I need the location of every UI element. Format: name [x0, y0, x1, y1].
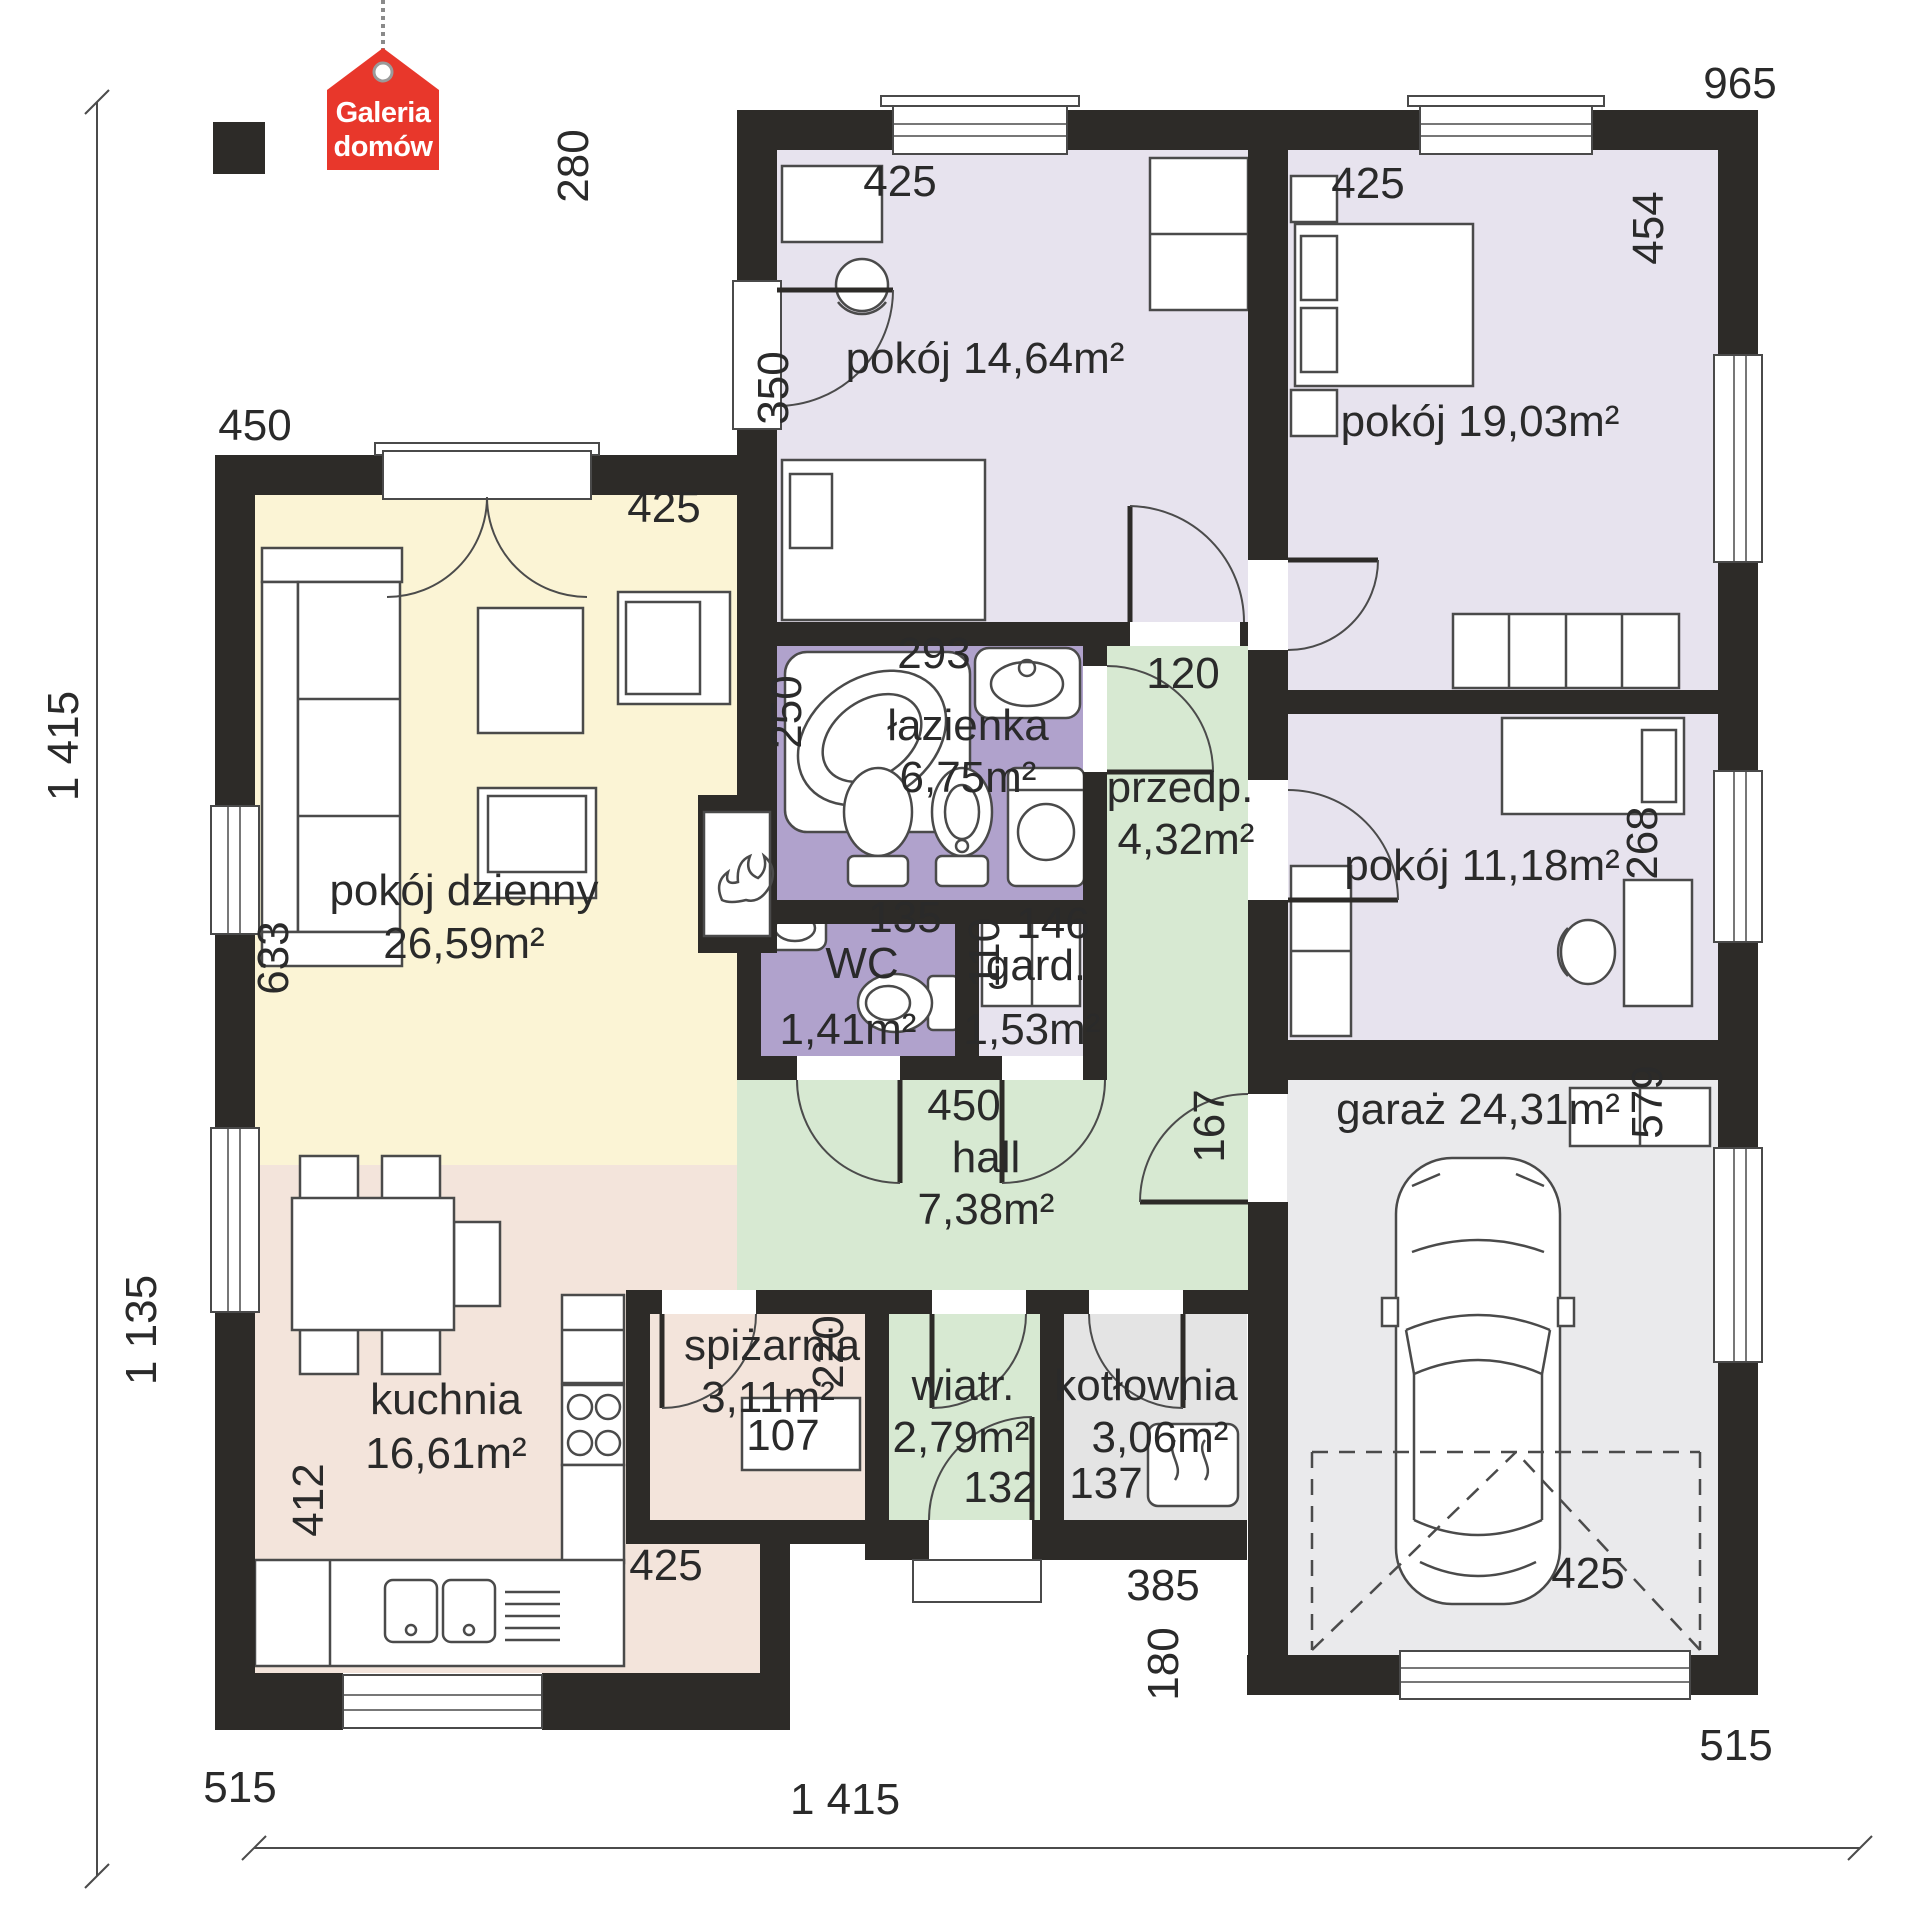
terrace-door-window — [375, 443, 599, 499]
chair-icon — [1558, 920, 1615, 984]
label-windbreak-area: 2,79m² — [893, 1413, 1030, 1462]
window — [211, 1128, 259, 1312]
kitchen-counter-icon — [562, 1465, 624, 1563]
dim-412: 412 — [284, 1463, 333, 1536]
label-hall-area: 7,38m² — [918, 1185, 1055, 1234]
armchair-icon — [618, 592, 730, 704]
label-wc: WC — [825, 939, 898, 988]
garage-door-opening — [1400, 1651, 1690, 1699]
dim-137: 137 — [1069, 1459, 1142, 1508]
fireplace-icon — [704, 812, 773, 936]
dim-425-p14: 425 — [863, 157, 936, 206]
label-kitchen: kuchnia — [370, 1375, 522, 1424]
logo-hole — [374, 63, 392, 81]
coffee-table-icon — [478, 608, 583, 733]
label-pokoj11: pokój 11,18m² — [1344, 841, 1620, 890]
dim-1415-bottom: 1 415 — [790, 1775, 900, 1824]
dim-1135: 1 135 — [117, 1275, 166, 1385]
dim-293: 293 — [897, 629, 970, 678]
window — [343, 1675, 542, 1728]
floor-plan-page: pokój 14,64m² pokój 19,03m² pokój 11,18m… — [0, 0, 1920, 1924]
brand-square — [213, 122, 265, 174]
floor-plan-svg: pokój 14,64m² pokój 19,03m² pokój 11,18m… — [0, 0, 1920, 1924]
logo: Galeria domów — [327, 0, 439, 170]
dim-135: 135 — [868, 893, 941, 942]
bed-icon — [782, 460, 985, 620]
dim-425-p19: 425 — [1331, 159, 1404, 208]
dim-425-garage: 425 — [1551, 1549, 1624, 1598]
label-hall: hall — [952, 1133, 1021, 1182]
label-kitchen-area: 16,61m² — [365, 1429, 526, 1478]
dim-579: 579 — [1623, 1065, 1672, 1138]
dim-515-right: 515 — [1699, 1721, 1772, 1770]
dim-146: 146 — [1016, 899, 1089, 948]
fridge-icon — [562, 1295, 624, 1383]
dim-385: 385 — [1126, 1561, 1199, 1610]
window — [211, 806, 259, 934]
label-bathroom-area: 6,75m² — [900, 753, 1037, 802]
window — [1408, 96, 1604, 154]
desk-icon — [1624, 880, 1692, 1006]
dim-120: 120 — [1146, 649, 1219, 698]
dim-107: 107 — [746, 1411, 819, 1460]
entrance-step — [913, 1560, 1041, 1602]
dim-454: 454 — [1624, 191, 1673, 264]
dim-1415-left: 1 415 — [39, 691, 88, 801]
label-boiler: kotłownia — [1054, 1361, 1238, 1410]
dim-425-kitchen: 425 — [629, 1541, 702, 1590]
dim-220: 220 — [804, 1315, 853, 1388]
stove-icon — [562, 1385, 624, 1465]
window — [1714, 355, 1762, 562]
label-pokoj14: pokój 14,64m² — [846, 334, 1125, 383]
car-icon — [1382, 1158, 1574, 1604]
wardrobe-icon — [1150, 158, 1248, 310]
dim-425-living: 425 — [627, 483, 700, 532]
dim-132: 132 — [963, 1463, 1036, 1512]
dim-515-left: 515 — [203, 1763, 276, 1812]
dim-268: 268 — [1618, 806, 1667, 879]
label-pokoj19: pokój 19,03m² — [1341, 397, 1620, 446]
single-bed-icon — [1502, 718, 1684, 814]
kitchen-sink-icon — [255, 1560, 624, 1666]
label-living: pokój dzienny — [329, 866, 598, 915]
dim-167: 167 — [1185, 1089, 1234, 1162]
dim-633: 633 — [249, 921, 298, 994]
dim-450-living: 450 — [218, 401, 291, 450]
dresser-icon — [1453, 614, 1679, 688]
logo-text-1: Galeria — [336, 97, 432, 129]
dim-280: 280 — [549, 129, 598, 202]
logo-text-2: domów — [334, 131, 434, 163]
label-living-area: 26,59m² — [383, 919, 544, 968]
wardrobe-icon — [1291, 866, 1351, 1036]
dim-250: 250 — [762, 675, 811, 748]
window — [1714, 771, 1762, 942]
dim-350: 350 — [749, 351, 798, 424]
label-wc-area: 1,41m² — [780, 1005, 917, 1054]
dim-450-hall: 450 — [927, 1081, 1000, 1130]
label-garage: garaż 24,31m² — [1336, 1085, 1620, 1134]
label-boiler-area: 3,06m² — [1092, 1413, 1229, 1462]
label-przedp: przedp. — [1107, 763, 1254, 812]
label-przedp-area: 4,32m² — [1118, 815, 1255, 864]
dim-180: 180 — [1139, 1627, 1188, 1700]
window — [881, 96, 1079, 154]
dim-965: 965 — [1703, 59, 1776, 108]
label-bathroom: łazienka — [887, 701, 1049, 750]
label-windbreak: wiatr. — [911, 1361, 1015, 1410]
dim-110: 110 — [960, 918, 1009, 988]
label-gard-area: 1,53m² — [964, 1005, 1101, 1054]
window — [1714, 1148, 1762, 1362]
